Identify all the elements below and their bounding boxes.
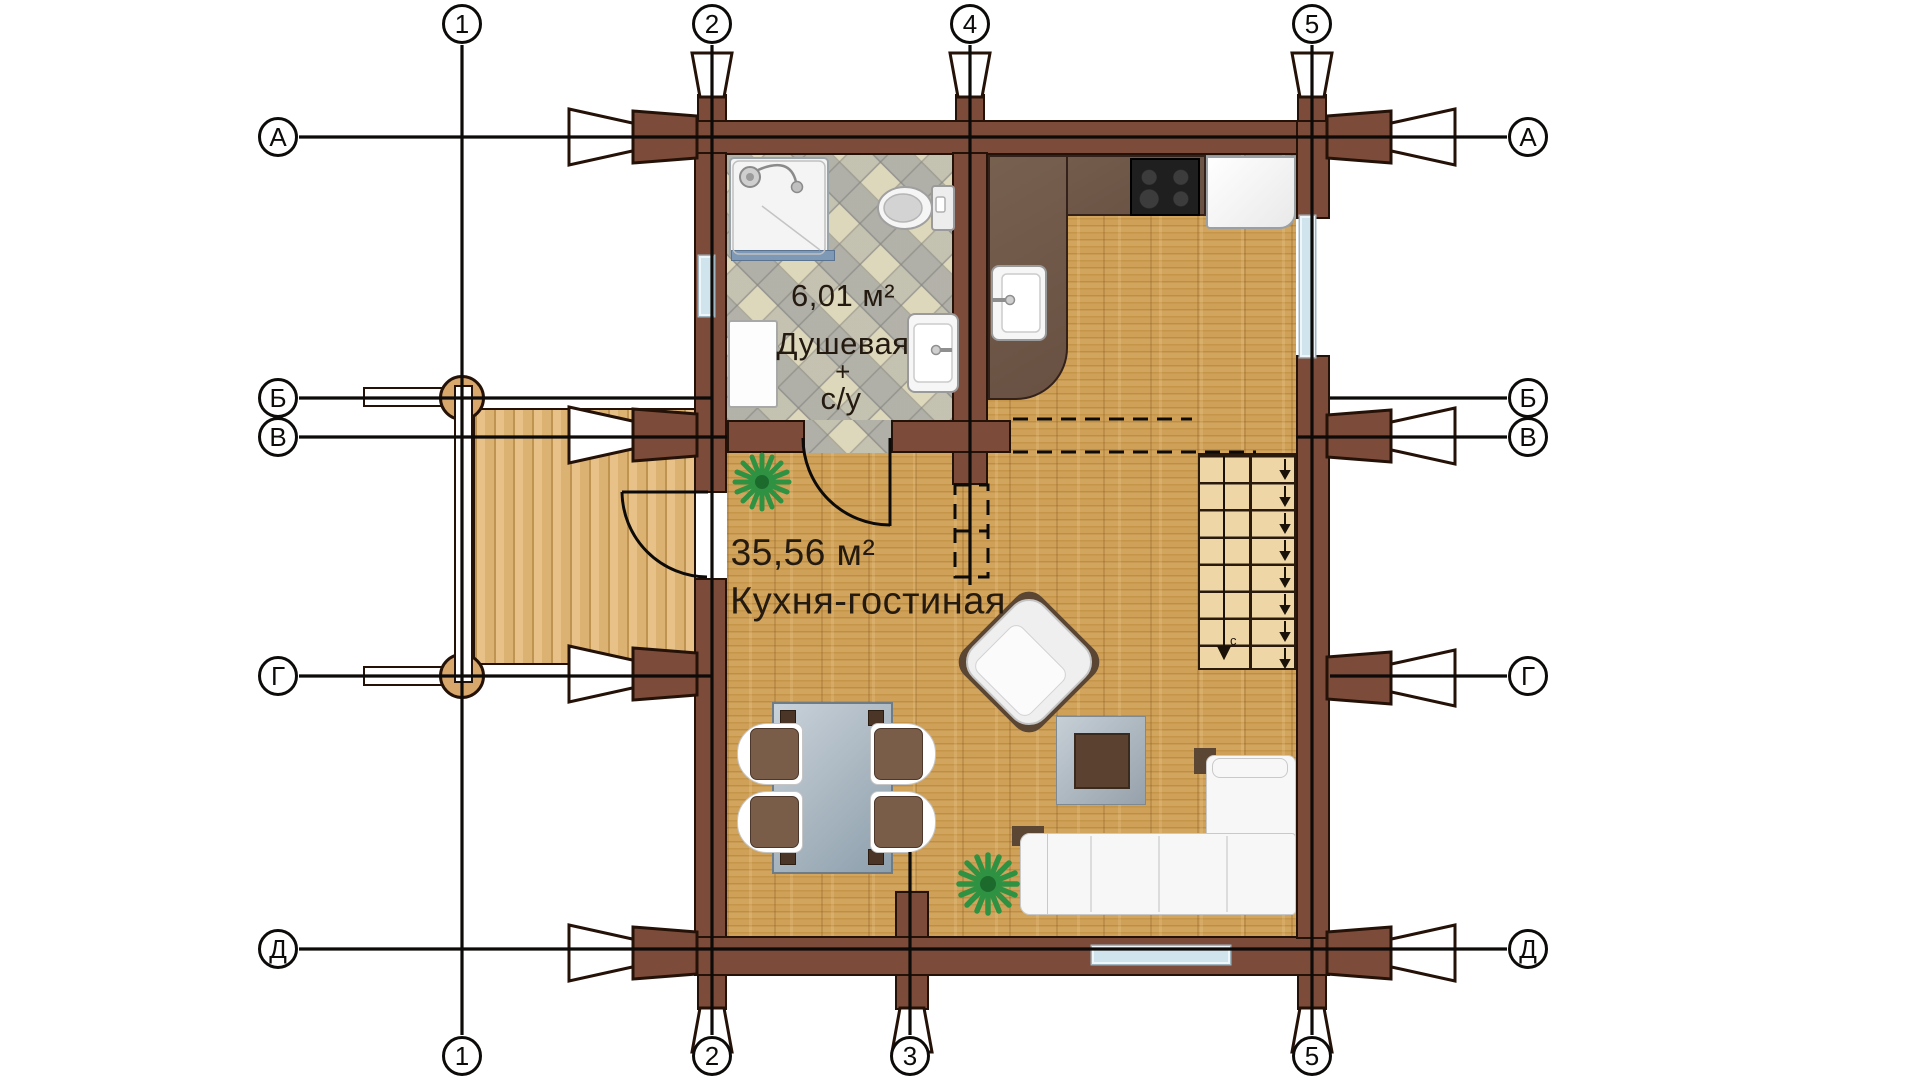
- axis-circle-top-5: 5: [1292, 4, 1332, 44]
- wall-right-top-pier: [1296, 120, 1330, 219]
- wall-right-main: [1296, 355, 1330, 939]
- coffee-table-top: [1074, 733, 1130, 789]
- shower-rail: [731, 250, 835, 261]
- tile-floor-door-opening: [803, 420, 893, 453]
- dining-chair-right-1: [870, 723, 936, 785]
- fridge: [1206, 156, 1296, 229]
- sofa-armrest: [1020, 833, 1048, 915]
- window-bottom-living: [1092, 946, 1230, 964]
- axis-circle-right-v: В: [1508, 417, 1548, 457]
- stairs-down-label: с: [1230, 633, 1237, 648]
- shower-room-area: 6,01 м²: [791, 278, 895, 314]
- axis-circle-bottom-2: 2: [692, 1036, 732, 1076]
- dining-chair-left-1: [737, 723, 803, 785]
- window-left-shower: [699, 256, 714, 316]
- wall-left-upper: [694, 152, 727, 493]
- axis-circle-right-a: А: [1508, 117, 1548, 157]
- sofa-seam-2: [1158, 836, 1160, 912]
- axis-circle-left-b: Б: [258, 378, 298, 418]
- axis-circle-bottom-3: 3: [890, 1036, 930, 1076]
- axis-circle-top-4: 4: [950, 4, 990, 44]
- stove-cooktop: [1130, 158, 1200, 216]
- axis-circle-left-a: А: [258, 117, 298, 157]
- axis-circle-right-d: Д: [1508, 929, 1548, 969]
- axis-circle-top-1: 1: [442, 4, 482, 44]
- washing-machine: [728, 320, 778, 408]
- shower-tray: [729, 157, 829, 258]
- staircase-stringer-line: [1249, 455, 1252, 668]
- sofa-seam-1: [1090, 836, 1092, 912]
- chair-seat: [874, 728, 923, 780]
- axis-circle-left-v: В: [258, 417, 298, 457]
- terrace-deck: [473, 408, 696, 665]
- wall-shower-bottom-right: [891, 420, 1011, 453]
- chair-seat: [750, 796, 799, 848]
- wall-bottom: [694, 936, 1330, 976]
- log-pier-bottom-axis5: [1297, 972, 1327, 1010]
- wall-left-lower: [694, 578, 727, 939]
- staircase: [1198, 453, 1296, 670]
- window-right-kitchen: [1300, 216, 1315, 357]
- axis-circle-bottom-5: 5: [1292, 1036, 1332, 1076]
- sofa-chaise-cushion: [1212, 758, 1288, 778]
- wall-top: [694, 120, 1330, 155]
- kitchen-living-area: 35,56 м²: [731, 532, 876, 574]
- log-pier-bottom-axis2: [697, 972, 727, 1010]
- kitchen-living-name: Кухня-гостиная: [730, 581, 1006, 624]
- floor-plan: 6,01 м² Душевая + с/у 35,56 м² Кухня-гос…: [0, 0, 1920, 1080]
- axis-circle-top-2: 2: [692, 4, 732, 44]
- axis-circle-left-g: Г: [258, 656, 298, 696]
- shower-room-wc: с/у: [820, 381, 861, 417]
- axis-circle-right-g: Г: [1508, 656, 1548, 696]
- dining-chair-left-2: [737, 791, 803, 853]
- wall-shower-bottom-left: [727, 420, 805, 453]
- axis-circle-right-b: Б: [1508, 378, 1548, 418]
- dining-chair-right-2: [870, 791, 936, 853]
- sofa-seam-3: [1226, 836, 1228, 912]
- terrace-column: [454, 385, 473, 683]
- kitchen-counter-side: [988, 155, 1068, 400]
- axis-circle-bottom-1: 1: [442, 1036, 482, 1076]
- axis-circle-left-d: Д: [258, 929, 298, 969]
- chair-seat: [874, 796, 923, 848]
- chair-seat: [750, 728, 799, 780]
